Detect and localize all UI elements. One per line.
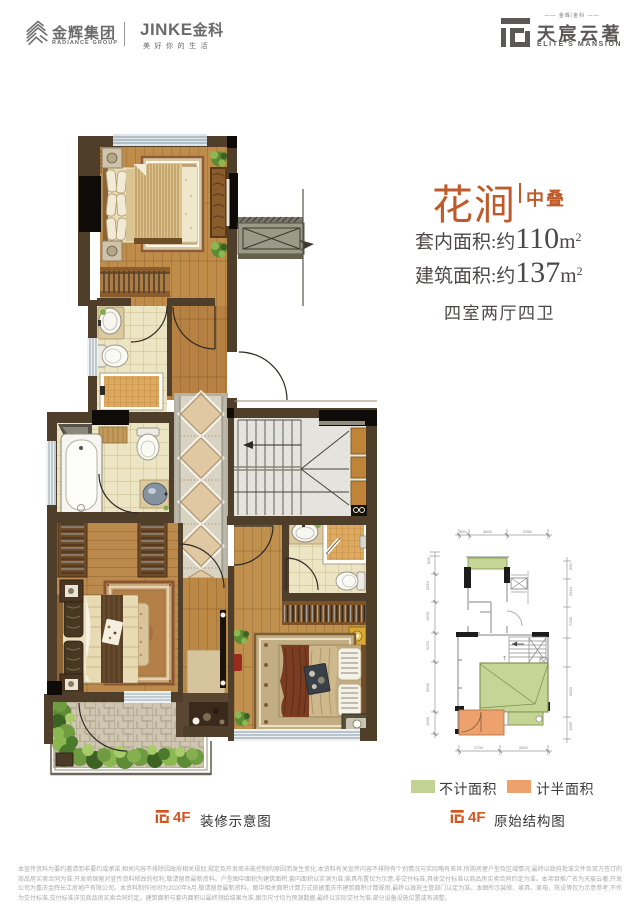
svg-text:2700: 2700 (474, 745, 484, 750)
svg-text:2950: 2950 (523, 529, 533, 534)
svg-text:900: 900 (568, 563, 573, 570)
svg-text:T: T (503, 656, 506, 662)
svg-text:6000: 6000 (568, 686, 573, 696)
svg-text:850: 850 (460, 529, 467, 534)
svg-text:7200: 7200 (568, 616, 573, 626)
svg-text:2070: 2070 (425, 640, 430, 650)
svg-text:1500: 1500 (425, 611, 430, 621)
svg-text:2610: 2610 (568, 586, 573, 596)
svg-text:3600: 3600 (483, 529, 493, 534)
svg-text:2800: 2800 (519, 745, 529, 750)
svg-text:3600: 3600 (425, 682, 430, 692)
svg-text:2610: 2610 (425, 580, 430, 590)
svg-text:1560: 1560 (568, 721, 573, 731)
svg-text:1560: 1560 (425, 716, 430, 726)
svg-text:900: 900 (426, 557, 431, 564)
